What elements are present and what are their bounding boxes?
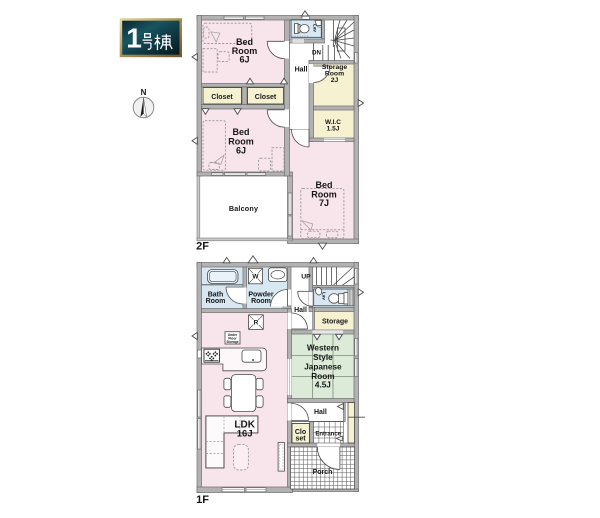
svg-text:6J: 6J xyxy=(236,146,246,156)
svg-text:Lav: Lav xyxy=(313,24,318,32)
svg-text:4.5J: 4.5J xyxy=(315,381,331,390)
svg-text:W: W xyxy=(252,274,259,281)
svg-text:2J: 2J xyxy=(331,77,339,84)
svg-text:Lav: Lav xyxy=(322,292,327,300)
svg-text:Room: Room xyxy=(206,298,226,305)
svg-text:Closet: Closet xyxy=(211,94,233,101)
svg-text:UP: UP xyxy=(301,274,311,281)
svg-text:N: N xyxy=(141,88,147,97)
svg-text:Storage: Storage xyxy=(322,318,348,325)
svg-text:2F: 2F xyxy=(196,241,209,253)
svg-text:Western: Western xyxy=(307,344,339,353)
svg-text:1F: 1F xyxy=(196,494,209,506)
svg-text:Style: Style xyxy=(313,353,333,362)
svg-text:Hall: Hall xyxy=(314,409,327,416)
svg-text:Entrance: Entrance xyxy=(315,432,341,438)
svg-text:Closet: Closet xyxy=(255,94,277,101)
svg-text:1: 1 xyxy=(126,23,142,54)
svg-text:set: set xyxy=(295,436,306,443)
svg-text:Hall: Hall xyxy=(295,67,308,74)
svg-text:Balcony: Balcony xyxy=(229,204,258,213)
svg-text:6J: 6J xyxy=(239,55,249,65)
svg-text:Room: Room xyxy=(251,298,271,305)
svg-text:Hall: Hall xyxy=(294,307,307,314)
svg-text:Porch: Porch xyxy=(313,469,333,476)
svg-text:Japanese: Japanese xyxy=(304,363,342,372)
svg-text:Storage: Storage xyxy=(226,340,238,344)
svg-text:DN: DN xyxy=(312,50,321,57)
svg-text:1.5J: 1.5J xyxy=(327,126,340,133)
svg-text:7J: 7J xyxy=(319,198,329,208)
svg-text:R: R xyxy=(254,320,259,327)
svg-text:16J: 16J xyxy=(237,429,253,440)
